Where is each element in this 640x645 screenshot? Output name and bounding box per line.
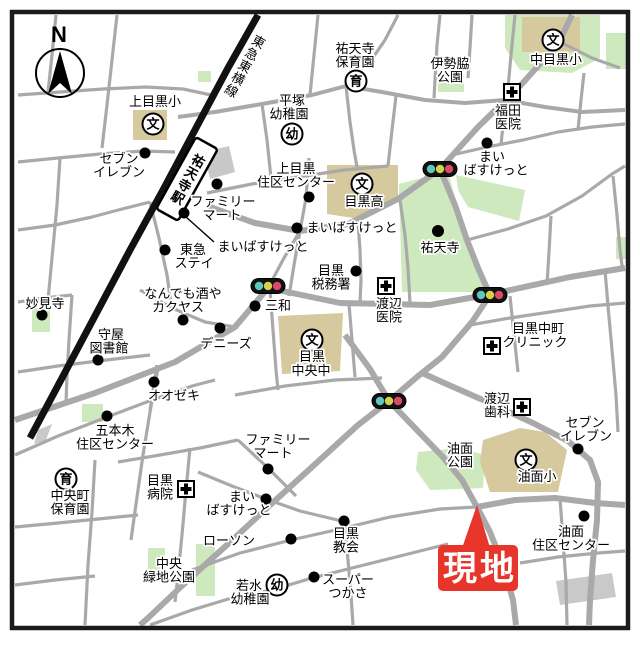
traffic-light-icon <box>372 394 406 409</box>
label-seven-eleven-nw: セブンイレブン <box>93 151 145 180</box>
label-maibasuketto-s: まいばすけっと <box>206 489 271 518</box>
dot-myokenji <box>37 310 48 321</box>
park-top-center <box>198 71 211 82</box>
park-yutenji-temple-east <box>456 175 525 221</box>
label-watanabe-iin: 渡辺医院 <box>376 296 402 325</box>
dot-gohongi-jukucenter <box>102 411 113 422</box>
hospital-icon <box>178 481 194 497</box>
dot-familymart-s <box>263 464 274 475</box>
dot-dennys <box>215 323 226 334</box>
label-meguro-nakamachi-clinic: 目黒中町クリニック <box>502 321 567 350</box>
hospital-icon <box>504 84 520 100</box>
label-hiratsuka-yochien: 平塚幼稚園 <box>269 93 308 122</box>
compass-n-label: N <box>51 22 67 47</box>
dot-lawson <box>286 534 297 545</box>
hospital-icon <box>378 278 394 294</box>
map-canvas: 東急東横線 祐天寺駅 <box>0 0 640 640</box>
label-chuocho-hoikuen: 中央町保育園 <box>50 488 89 517</box>
label-fukuda-iin: 福田医院 <box>495 103 521 132</box>
dot-moriya-toshokan <box>93 355 104 366</box>
nursery-icon: 育 <box>346 71 367 92</box>
svg-text:育: 育 <box>59 472 72 487</box>
label-maibasuketto-ne: まいばすけっと <box>463 149 528 178</box>
kindergarten-icon: 幼 <box>282 124 303 145</box>
dot-kamimeguro-jukucenter <box>304 192 315 203</box>
traffic-light-icon <box>251 279 285 294</box>
label-aburamen-koen: 油面公園 <box>447 441 473 470</box>
svg-text:幼: 幼 <box>270 578 283 593</box>
label-lawson: ローソン <box>203 533 255 548</box>
park-areas <box>32 15 628 596</box>
label-yutenji-hoikuen: 祐天寺保育園 <box>335 41 374 70</box>
dot-familymart-n <box>212 179 223 190</box>
label-aburamen-sho: 油面小 <box>517 469 556 484</box>
label-meguro-byoin: 目黒病院 <box>147 473 173 502</box>
label-oozeki: オオゼキ <box>148 388 200 403</box>
nursery-icon: 育 <box>56 469 77 490</box>
label-familymart-s: ファミリーマート <box>245 432 310 461</box>
dot-tokyu-stay <box>160 245 171 256</box>
site-marker-genchi: 現地 <box>438 505 518 591</box>
label-meguro-zeimusho: 目黒税務署 <box>311 263 350 292</box>
svg-text:文: 文 <box>519 453 533 468</box>
svg-text:文: 文 <box>546 33 560 48</box>
school-icon: 文 <box>516 450 537 471</box>
school-icon: 文 <box>352 174 373 195</box>
label-moriya-toshokan: 守屋図書館 <box>89 327 128 356</box>
svg-text:文: 文 <box>146 117 160 132</box>
dot-oozeki <box>149 377 160 388</box>
compass-north: N <box>36 22 84 97</box>
dot-super-tsukasa <box>309 572 320 583</box>
traffic-light-icon <box>473 288 507 303</box>
dot-maibasuketto-stn <box>179 208 190 219</box>
dot-yutenji-temple <box>432 225 444 237</box>
hospital-icon <box>514 399 530 415</box>
dot-meguro-zeimusho <box>351 266 362 277</box>
site-marker-label: 現地 <box>443 550 517 588</box>
svg-text:文: 文 <box>305 333 319 348</box>
label-maibasuketto-mid: まいばすけっと <box>306 220 397 235</box>
label-wakamizu-yochien: 若水幼稚園 <box>230 578 269 607</box>
label-myokenji: 妙見寺 <box>25 296 64 311</box>
map-page: 東急東横線 祐天寺駅 <box>0 0 640 640</box>
label-meguro-ko: 目黒高 <box>344 194 383 209</box>
traffic-light-icon <box>423 162 457 177</box>
label-maibasuketto-stn: まいばすけっと <box>217 239 308 254</box>
label-yutenji-temple: 祐天寺 <box>420 240 459 255</box>
svg-text:幼: 幼 <box>285 127 298 142</box>
school-icon: 文 <box>143 114 164 135</box>
dot-seven-eleven-se <box>573 444 584 455</box>
dot-maibasuketto-mid <box>292 223 303 234</box>
dot-aburamen-jukucenter <box>579 511 590 522</box>
label-seven-eleven-se: セブンイレブン <box>560 415 612 444</box>
dot-sanwa <box>250 301 261 312</box>
dot-kakuyasu <box>178 315 189 326</box>
label-gohongi-jukucenter: 五本木住区センター <box>76 423 154 452</box>
svg-text:文: 文 <box>355 177 369 192</box>
school-icon: 文 <box>302 330 323 351</box>
label-super-tsukasa: スーパーつかさ <box>322 572 374 601</box>
label-isewaki-koen: 伊勢脇公園 <box>430 56 469 85</box>
label-nakameguro-sho: 中目黒小 <box>530 52 582 67</box>
label-meguro-kyokai: 目黒教会 <box>333 526 359 555</box>
school-icon: 文 <box>543 30 564 51</box>
svg-text:育: 育 <box>349 74 362 89</box>
label-nandemo-kakuyasu: なんでも酒やカクヤス <box>144 286 221 315</box>
kindergarten-icon: 幼 <box>267 575 288 596</box>
label-kamimeguro-sho: 上目黒小 <box>129 94 181 109</box>
label-sanwa: 三和 <box>265 298 291 313</box>
dot-meguro-kyokai <box>339 516 350 527</box>
label-dennys: デニーズ <box>200 336 251 351</box>
hospital-icon <box>484 338 500 354</box>
dot-seven-eleven-nw <box>140 148 151 159</box>
dot-maibasuketto-ne <box>482 138 493 149</box>
label-watanabe-shika: 渡辺歯科 <box>484 391 510 420</box>
label-tokyu-stay: 東急ステイ <box>174 242 213 271</box>
